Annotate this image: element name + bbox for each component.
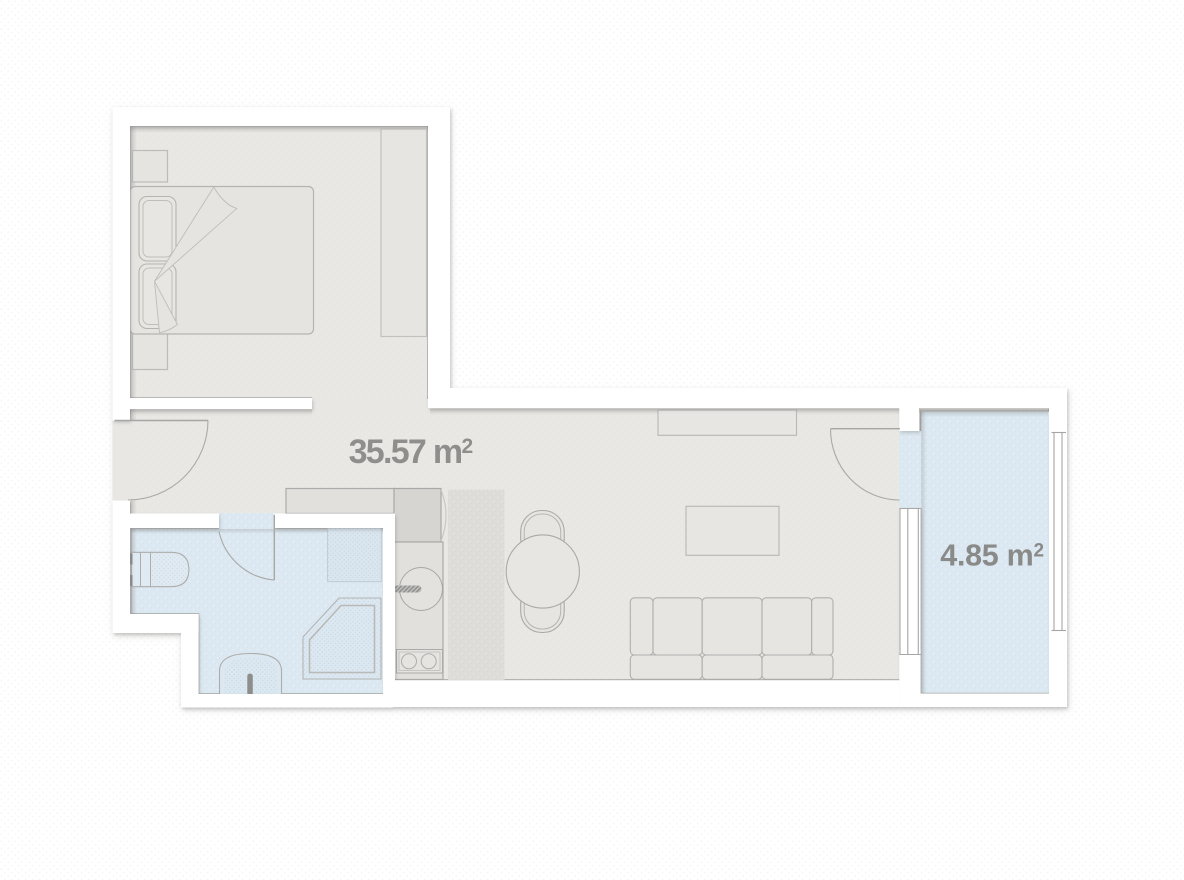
svg-text:35.57 m2: 35.57 m2	[349, 433, 473, 471]
svg-text:4.85 m2: 4.85 m2	[940, 539, 1043, 573]
